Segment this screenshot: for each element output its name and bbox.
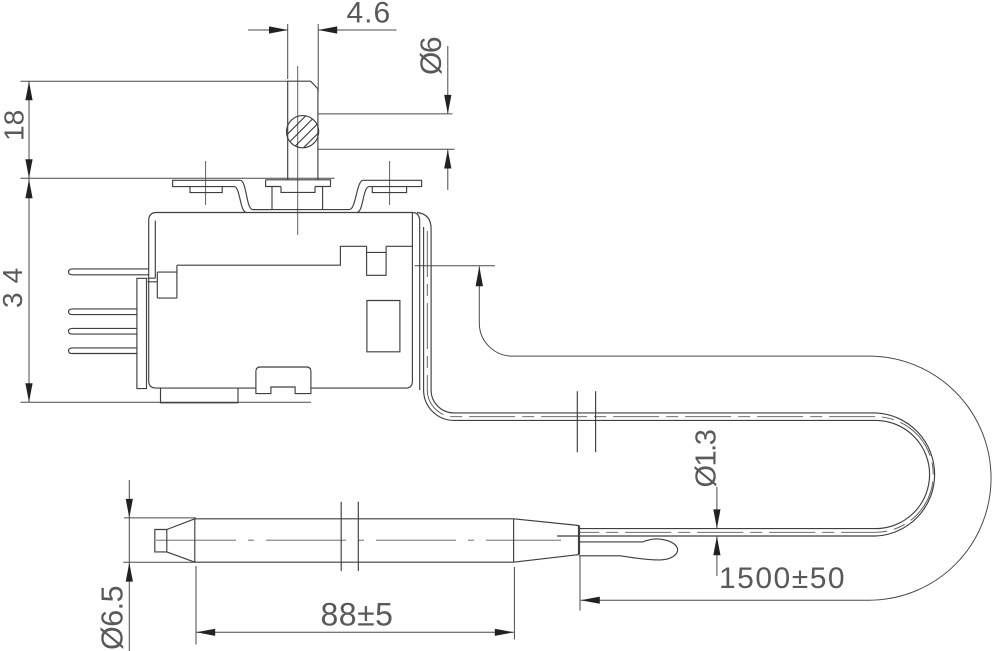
svg-text:Ø6: Ø6	[415, 37, 448, 75]
svg-text:Ø6.5: Ø6.5	[96, 586, 130, 650]
svg-text:4.6: 4.6	[347, 0, 392, 30]
svg-text:1500±50: 1500±50	[719, 562, 846, 595]
svg-text:34: 34	[0, 259, 28, 308]
svg-text:Ø1.3: Ø1.3	[691, 430, 723, 487]
svg-text:88±5: 88±5	[321, 597, 394, 633]
svg-text:18: 18	[0, 110, 30, 141]
